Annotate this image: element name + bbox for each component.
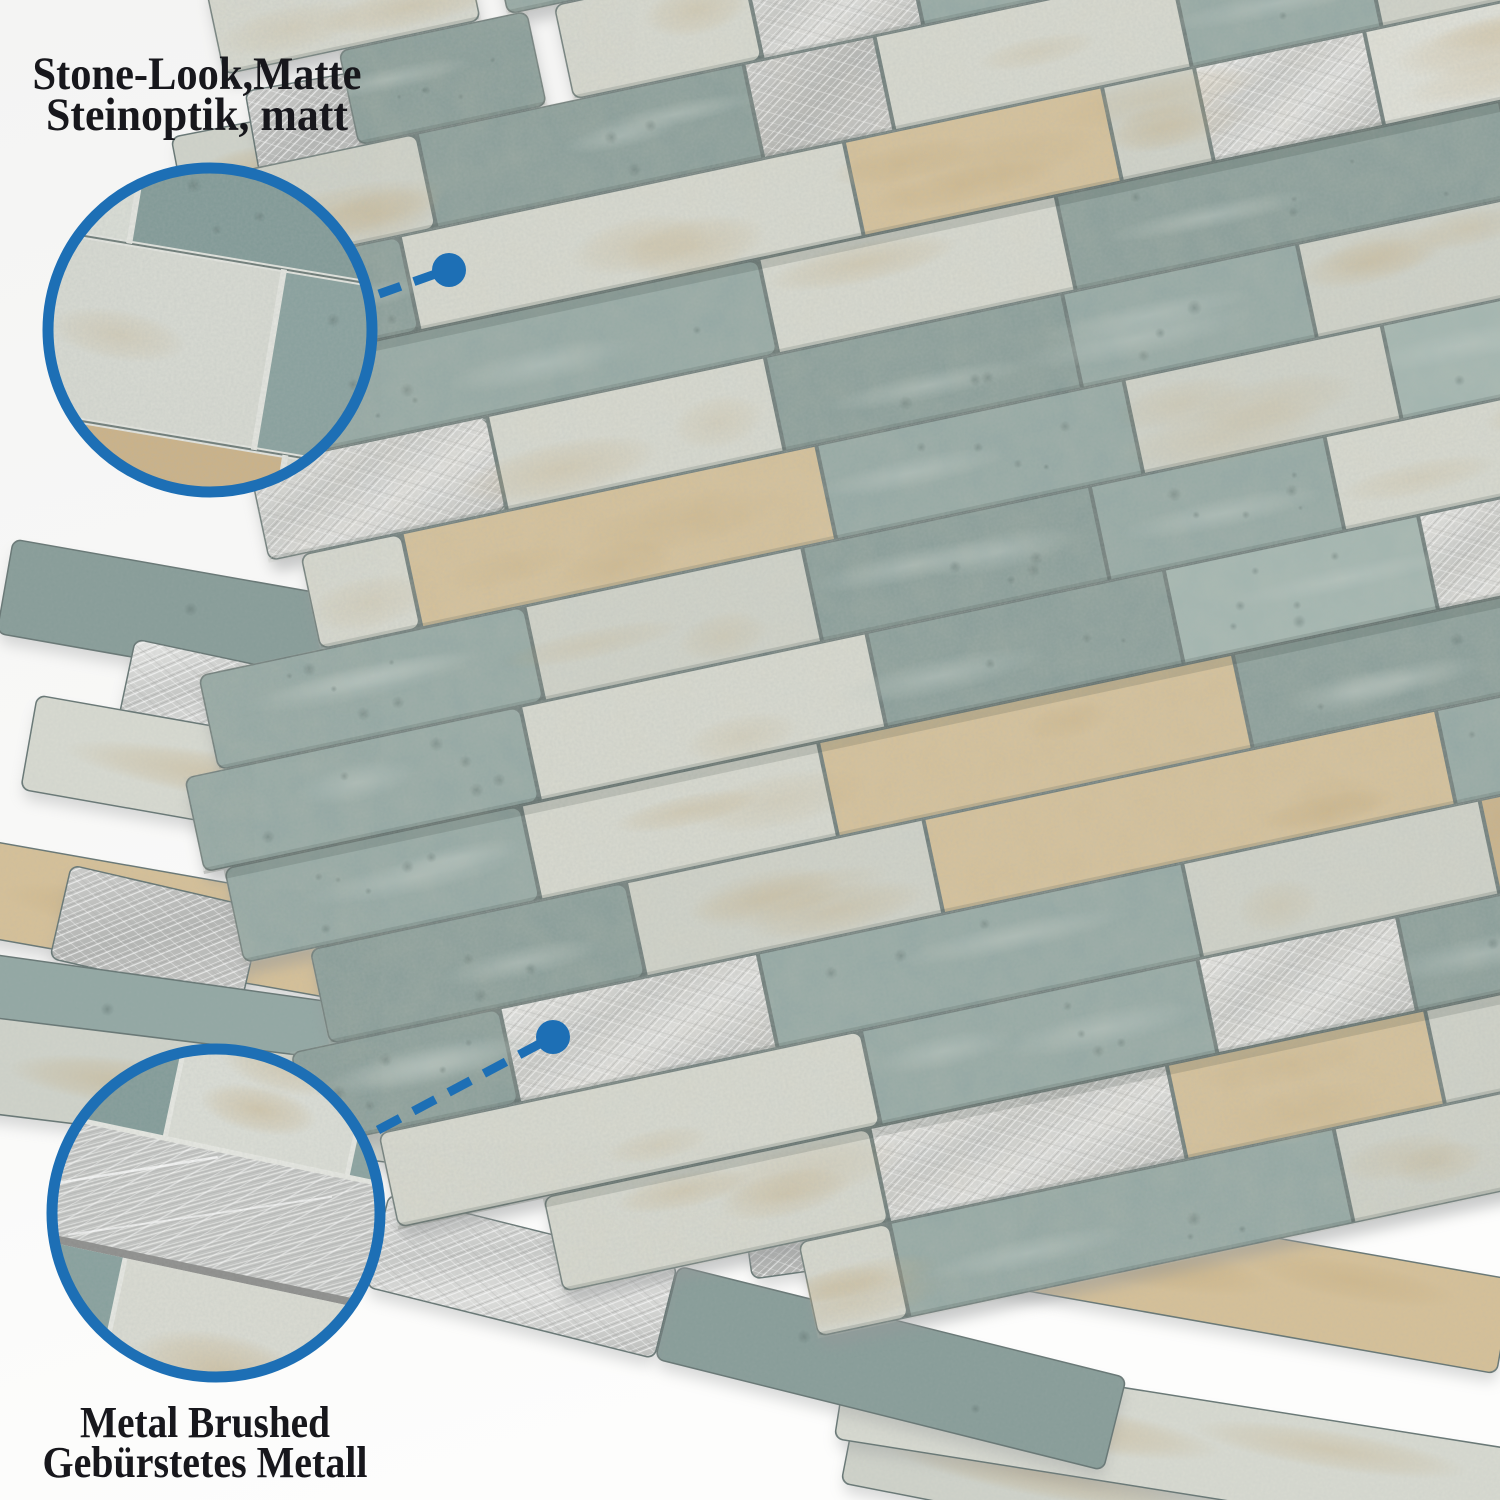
- svg-text:Gebürstetes Metall: Gebürstetes Metall: [43, 1438, 368, 1487]
- svg-text:Steinoptik, matt: Steinoptik, matt: [46, 89, 348, 141]
